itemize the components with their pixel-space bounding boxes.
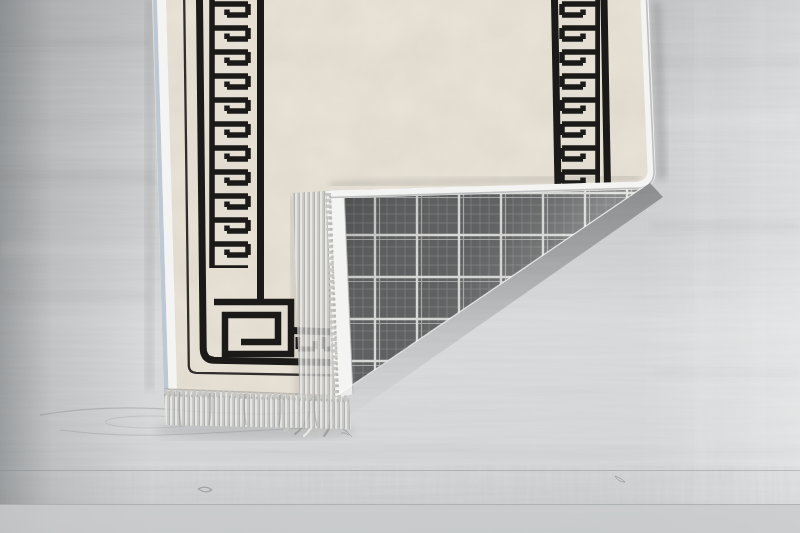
floor-rough-band [0, 470, 800, 504]
rug-product-photo: Beige rug with black Greek key meander b… [0, 0, 800, 533]
bottom-fringe [164, 391, 351, 429]
right-border-band [555, 0, 608, 187]
floor-bottom-plank [0, 504, 800, 533]
photo-canvas [0, 0, 800, 533]
